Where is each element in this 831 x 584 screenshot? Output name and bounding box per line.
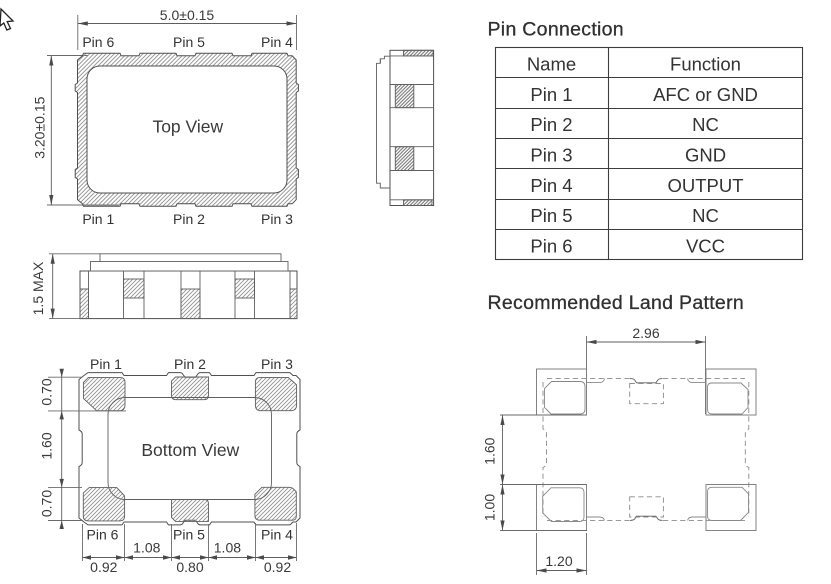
svg-text:AFC or GND: AFC or GND: [653, 84, 758, 105]
svg-text:Pin 3: Pin 3: [261, 211, 293, 227]
svg-text:1.20: 1.20: [545, 553, 572, 569]
svg-text:1.08: 1.08: [214, 540, 241, 556]
svg-text:2.96: 2.96: [632, 325, 659, 341]
svg-text:1.00: 1.00: [482, 494, 498, 521]
svg-text:Pin 6: Pin 6: [82, 34, 114, 50]
svg-text:Function: Function: [670, 54, 741, 75]
svg-text:1.60: 1.60: [482, 437, 498, 464]
svg-text:Pin 3: Pin 3: [530, 145, 572, 166]
svg-text:0.70: 0.70: [39, 378, 55, 405]
svg-text:VCC: VCC: [686, 235, 725, 256]
svg-text:0.70: 0.70: [39, 490, 55, 517]
svg-text:Pin 2: Pin 2: [530, 114, 572, 135]
svg-text:Pin 1: Pin 1: [82, 211, 114, 227]
svg-text:1.60: 1.60: [39, 432, 55, 459]
svg-text:Pin 5: Pin 5: [530, 205, 572, 226]
svg-text:GND: GND: [685, 145, 726, 166]
svg-text:Top View: Top View: [152, 116, 223, 136]
svg-text:Pin 5: Pin 5: [173, 527, 205, 543]
svg-text:5.0±0.15: 5.0±0.15: [160, 7, 215, 23]
svg-text:Pin 5: Pin 5: [173, 34, 205, 50]
svg-text:Pin 4: Pin 4: [530, 175, 572, 196]
svg-text:1.08: 1.08: [133, 540, 160, 556]
svg-text:Pin 1: Pin 1: [530, 84, 572, 105]
svg-text:Recommended Land Pattern: Recommended Land Pattern: [488, 292, 745, 314]
svg-text:NC: NC: [692, 114, 719, 135]
svg-text:Pin 4: Pin 4: [261, 527, 293, 543]
svg-text:Pin 2: Pin 2: [174, 356, 206, 372]
svg-text:Pin 4: Pin 4: [261, 34, 293, 50]
svg-text:3.20±0.15: 3.20±0.15: [32, 96, 48, 158]
svg-text:Pin 3: Pin 3: [261, 356, 293, 372]
svg-text:Bottom View: Bottom View: [141, 440, 239, 460]
svg-text:Name: Name: [527, 54, 576, 75]
svg-text:0.92: 0.92: [264, 559, 291, 575]
svg-text:Pin 6: Pin 6: [87, 527, 119, 543]
svg-text:Pin 2: Pin 2: [173, 211, 205, 227]
svg-text:NC: NC: [692, 205, 719, 226]
svg-text:Pin Connection: Pin Connection: [488, 19, 624, 41]
svg-text:Pin 1: Pin 1: [90, 356, 122, 372]
svg-text:0.80: 0.80: [176, 559, 203, 575]
svg-text:OUTPUT: OUTPUT: [667, 175, 743, 196]
svg-text:Pin 6: Pin 6: [530, 235, 572, 256]
svg-text:1.5 MAX: 1.5 MAX: [30, 261, 46, 315]
svg-text:0.92: 0.92: [90, 559, 117, 575]
